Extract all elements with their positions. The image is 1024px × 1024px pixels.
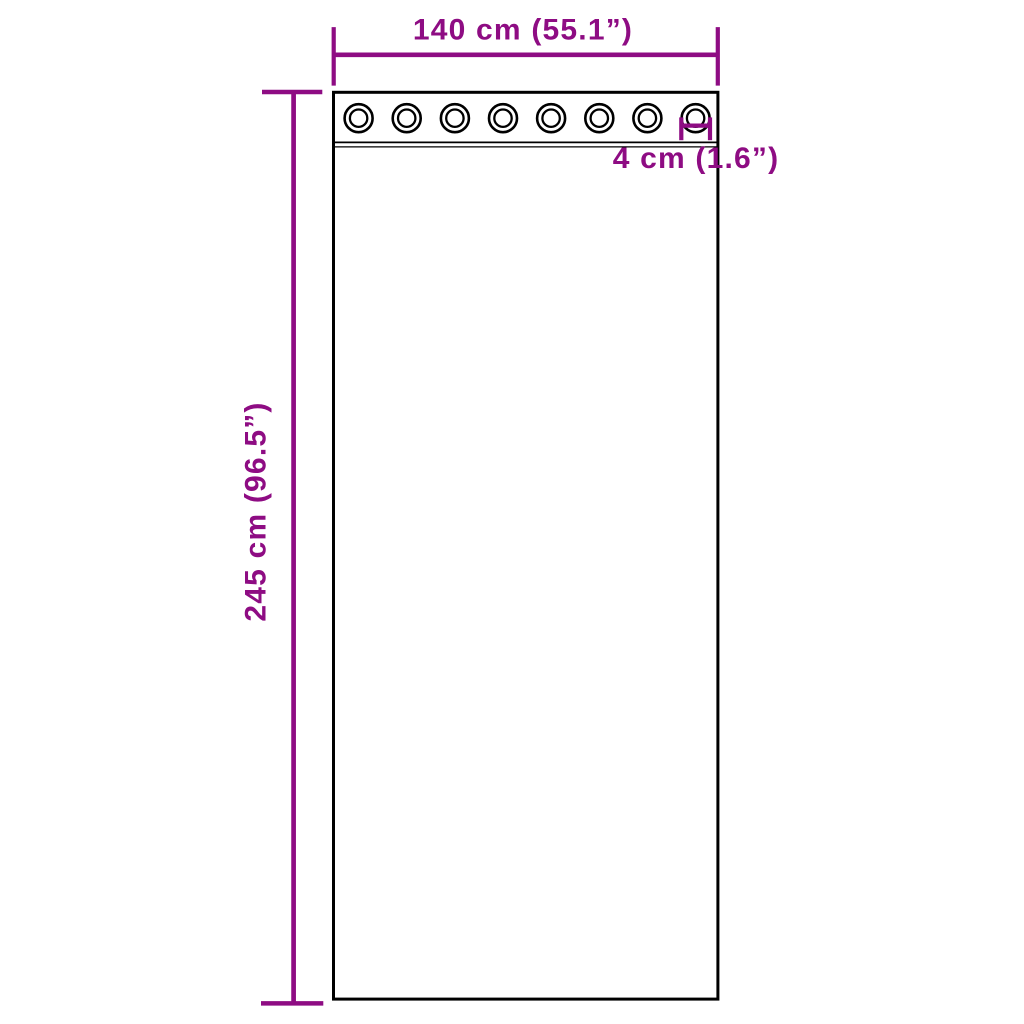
svg-text:4 cm (1.6”): 4 cm (1.6”) xyxy=(613,142,780,175)
svg-text:140 cm (55.1”): 140 cm (55.1”) xyxy=(413,14,633,47)
svg-text:245 cm (96.5”): 245 cm (96.5”) xyxy=(240,401,273,621)
